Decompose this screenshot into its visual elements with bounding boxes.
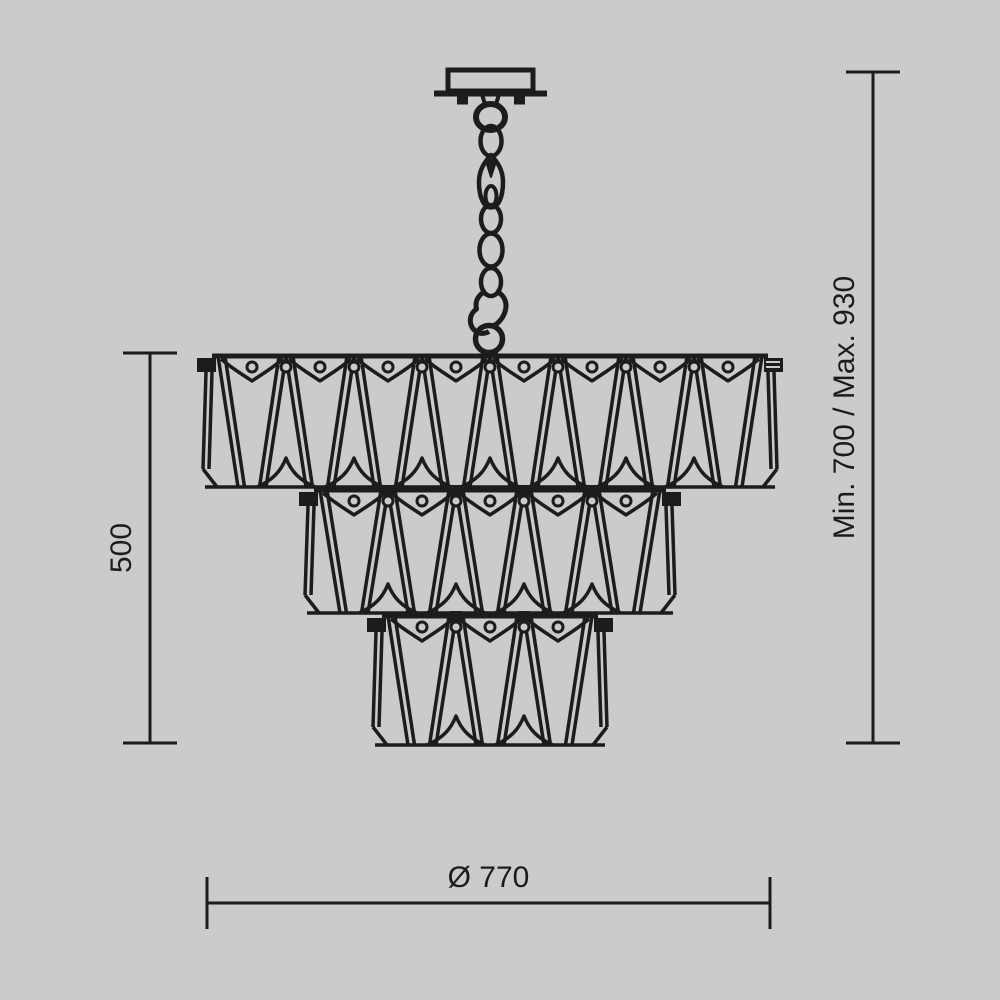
bottom-arch [257,458,315,487]
side-sliver [311,506,314,595]
bottom-arch [665,458,723,487]
crystal-prism [524,616,592,745]
tier-3 [367,611,613,745]
crystal-prism [626,356,694,487]
side-sliver [203,469,217,487]
crystal-prism [218,356,286,487]
crystal-tiers [197,351,783,745]
side-sliver [203,372,206,469]
bead-hole [553,496,563,506]
bead-hole [723,362,733,372]
end-cap-left [367,618,386,632]
bead-hole [485,622,495,632]
canopy-screw-left [457,97,468,105]
bead-hole [655,362,665,372]
bead-hole [689,362,699,372]
bead-hole [519,622,529,632]
bottom-arch [495,716,553,745]
bead-hole [621,362,631,372]
side-sliver [373,727,387,745]
bead-hole [417,362,427,372]
bottom-arch [529,458,587,487]
side-sliver [379,632,382,727]
side-sliver [373,632,376,727]
drawing-canvas: 500 Min. 700 / Max. 930 Ø 770 [0,0,1000,1000]
swivel-collar [486,160,497,177]
bead-hole [553,362,563,372]
connector-ring [476,326,503,353]
bead-hole [349,496,359,506]
tier-2 [299,485,681,613]
side-sliver [666,506,669,595]
bead-hole [417,496,427,506]
bottom-arch [495,584,553,613]
bead-hole [587,362,597,372]
bead-hole [417,622,427,632]
bottom-arch [563,584,621,613]
crystal-prism [388,490,456,613]
canopy-box [448,70,533,91]
side-sliver [593,727,607,745]
crystal-prism [456,616,524,745]
bead-hole [621,496,631,506]
end-cap-left [197,358,216,372]
bottom-arch [597,458,655,487]
end-cap-right [662,492,681,506]
canopy-screw-right [514,97,525,105]
junction-clamp [450,611,462,621]
chain-link [480,234,503,267]
crystal-prism [558,356,626,487]
center-clamp [482,351,498,357]
end-cap-left [299,492,318,506]
tier-1 [197,356,783,487]
dimension-suspension: Min. 700 / Max. 930 [828,72,900,743]
bead-hole [451,362,461,372]
crystal-prism [592,490,660,613]
bead-hole [553,622,563,632]
crystal-prism [456,490,524,613]
junction-clamp [450,485,462,495]
junction-clamp [586,485,598,495]
side-sliver [305,595,319,613]
dimension-diameter-label: Ø 770 [448,861,530,894]
crystal-prism [490,356,558,487]
dimension-height-label: 500 [105,523,138,573]
crystal-prism [286,356,354,487]
dimension-diameter: Ø 770 [207,861,770,929]
crystal-prism [694,356,762,487]
bead-hole [519,496,529,506]
bead-hole [485,496,495,506]
bottom-arch [427,584,485,613]
ceiling-mount [434,70,547,105]
bead-hole [383,362,393,372]
side-sliver [768,372,771,469]
side-sliver [672,506,675,595]
suspension-chain [470,96,506,358]
bead-hole [587,496,597,506]
bead-hole [247,362,257,372]
side-sliver [598,632,601,727]
side-sliver [661,595,675,613]
side-sliver [604,632,607,727]
side-sliver [305,506,308,595]
side-sliver [774,372,777,469]
bead-hole [485,362,495,372]
crystal-prism [422,356,490,487]
crystal-prism [524,490,592,613]
crystal-prism [354,356,422,487]
bead-hole [315,362,325,372]
bead-hole [519,362,529,372]
bead-hole [451,496,461,506]
bottom-arch [359,584,417,613]
dimension-suspension-label: Min. 700 / Max. 930 [828,276,861,539]
bead-hole [281,362,291,372]
chandelier-dimension-drawing: 500 Min. 700 / Max. 930 Ø 770 [0,0,1000,1000]
bottom-arch [461,458,519,487]
dimension-annotations: 500 Min. 700 / Max. 930 Ø 770 [105,72,900,929]
crystal-prism [388,616,456,745]
bead-hole [383,496,393,506]
bead-hole [451,622,461,632]
end-cap-right [594,618,613,632]
junction-clamp [518,485,530,495]
side-sliver [763,469,777,487]
bottom-arch [393,458,451,487]
bottom-arch [427,716,485,745]
junction-clamp [518,611,530,621]
bottom-arch [325,458,383,487]
bead-hole [349,362,359,372]
junction-clamp [382,485,394,495]
dimension-height: 500 [105,353,177,743]
end-cap-right [764,358,783,372]
crystal-prism [320,490,388,613]
side-sliver [209,372,212,469]
